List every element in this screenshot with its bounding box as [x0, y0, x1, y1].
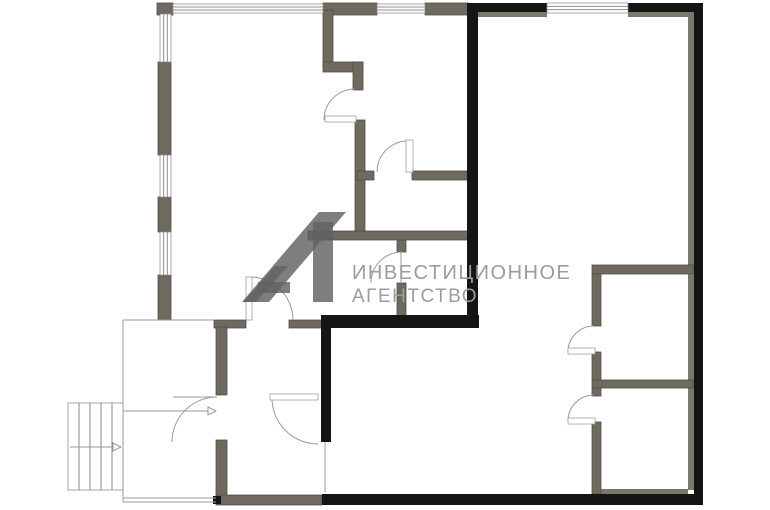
boundary-wall	[213, 496, 221, 504]
wall-lining	[628, 12, 688, 17]
watermark-logo-shape	[258, 282, 290, 293]
boundary-wall	[468, 3, 547, 12]
watermark-logo-shape	[313, 222, 333, 302]
wall-segment	[592, 422, 601, 494]
door-leaf	[406, 140, 413, 172]
wall-lining	[477, 12, 547, 17]
door-leaf	[325, 116, 356, 122]
wall-segment	[158, 62, 171, 155]
wall-lining	[688, 12, 694, 490]
wall-segment	[216, 327, 227, 395]
wall-segment	[323, 10, 333, 67]
door-swing-arc	[172, 397, 217, 442]
wall-segment	[353, 62, 363, 90]
door-leaf	[568, 418, 595, 424]
window	[160, 155, 171, 197]
wall-segment	[397, 240, 406, 252]
boundary-wall	[694, 3, 703, 505]
wall-segment	[592, 380, 693, 388]
boundary-wall	[322, 315, 479, 328]
window	[160, 14, 171, 62]
door-leaf	[270, 394, 318, 400]
wall-segment	[158, 197, 171, 232]
door-swing-arc	[324, 89, 355, 120]
floor-plan-canvas	[0, 0, 770, 510]
window	[377, 4, 425, 13]
wall-segment	[158, 275, 171, 320]
door-swing-arc	[377, 141, 408, 172]
watermark-agency-name-line2: АГЕНТСТВО	[352, 286, 478, 308]
boundary-wall	[322, 494, 703, 505]
window	[173, 4, 323, 13]
boundary-wall	[321, 315, 331, 442]
window	[547, 3, 628, 13]
door-swing-arc	[568, 395, 594, 421]
door-swing-arc	[272, 398, 318, 444]
wall-segment	[592, 265, 693, 274]
wall-segment	[157, 3, 173, 15]
direction-arrow-head	[208, 407, 216, 415]
wall-segment	[289, 320, 322, 328]
wall-segment	[592, 352, 601, 380]
window	[160, 232, 171, 275]
watermark-agency-name-line1: ИНВЕСТИЦИОННОЕ	[352, 262, 571, 285]
wall-segment	[216, 495, 322, 505]
wall-segment	[216, 440, 227, 502]
wall-segment	[592, 274, 601, 326]
boundary-wall	[628, 3, 703, 12]
door-leaf	[568, 348, 595, 354]
wall-segment	[425, 3, 469, 15]
wall-segment	[357, 171, 374, 180]
floor-plan: ИНВЕСТИЦИОННОЕ АГЕНТСТВО	[0, 0, 770, 510]
wall-segment	[412, 171, 468, 180]
